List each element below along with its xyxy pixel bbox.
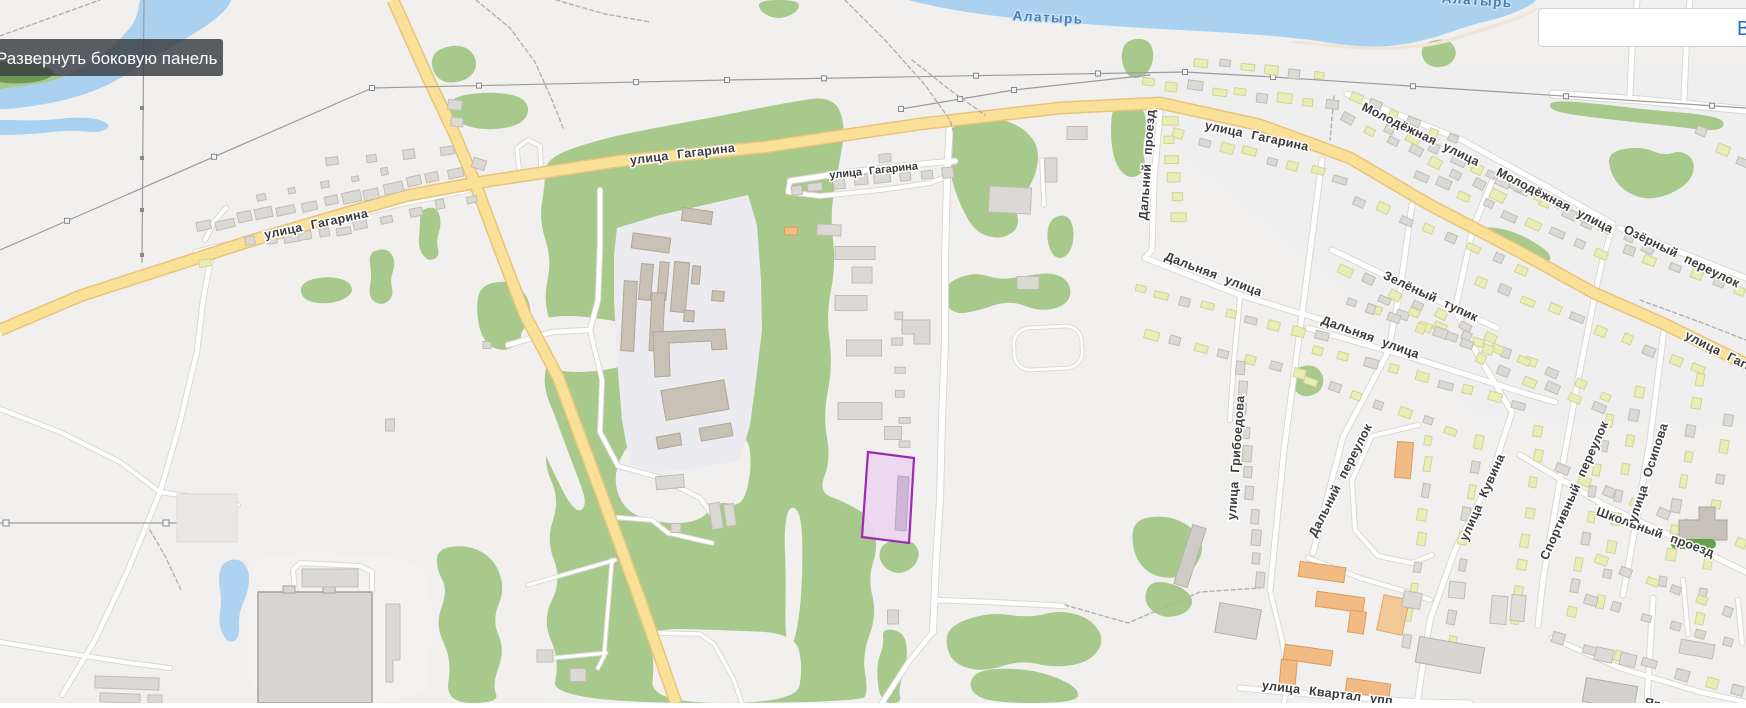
svg-text:Вернуться: Вернуться bbox=[1737, 18, 1746, 40]
svg-text:Развернуть боковую панель: Развернуть боковую панель bbox=[0, 49, 218, 68]
